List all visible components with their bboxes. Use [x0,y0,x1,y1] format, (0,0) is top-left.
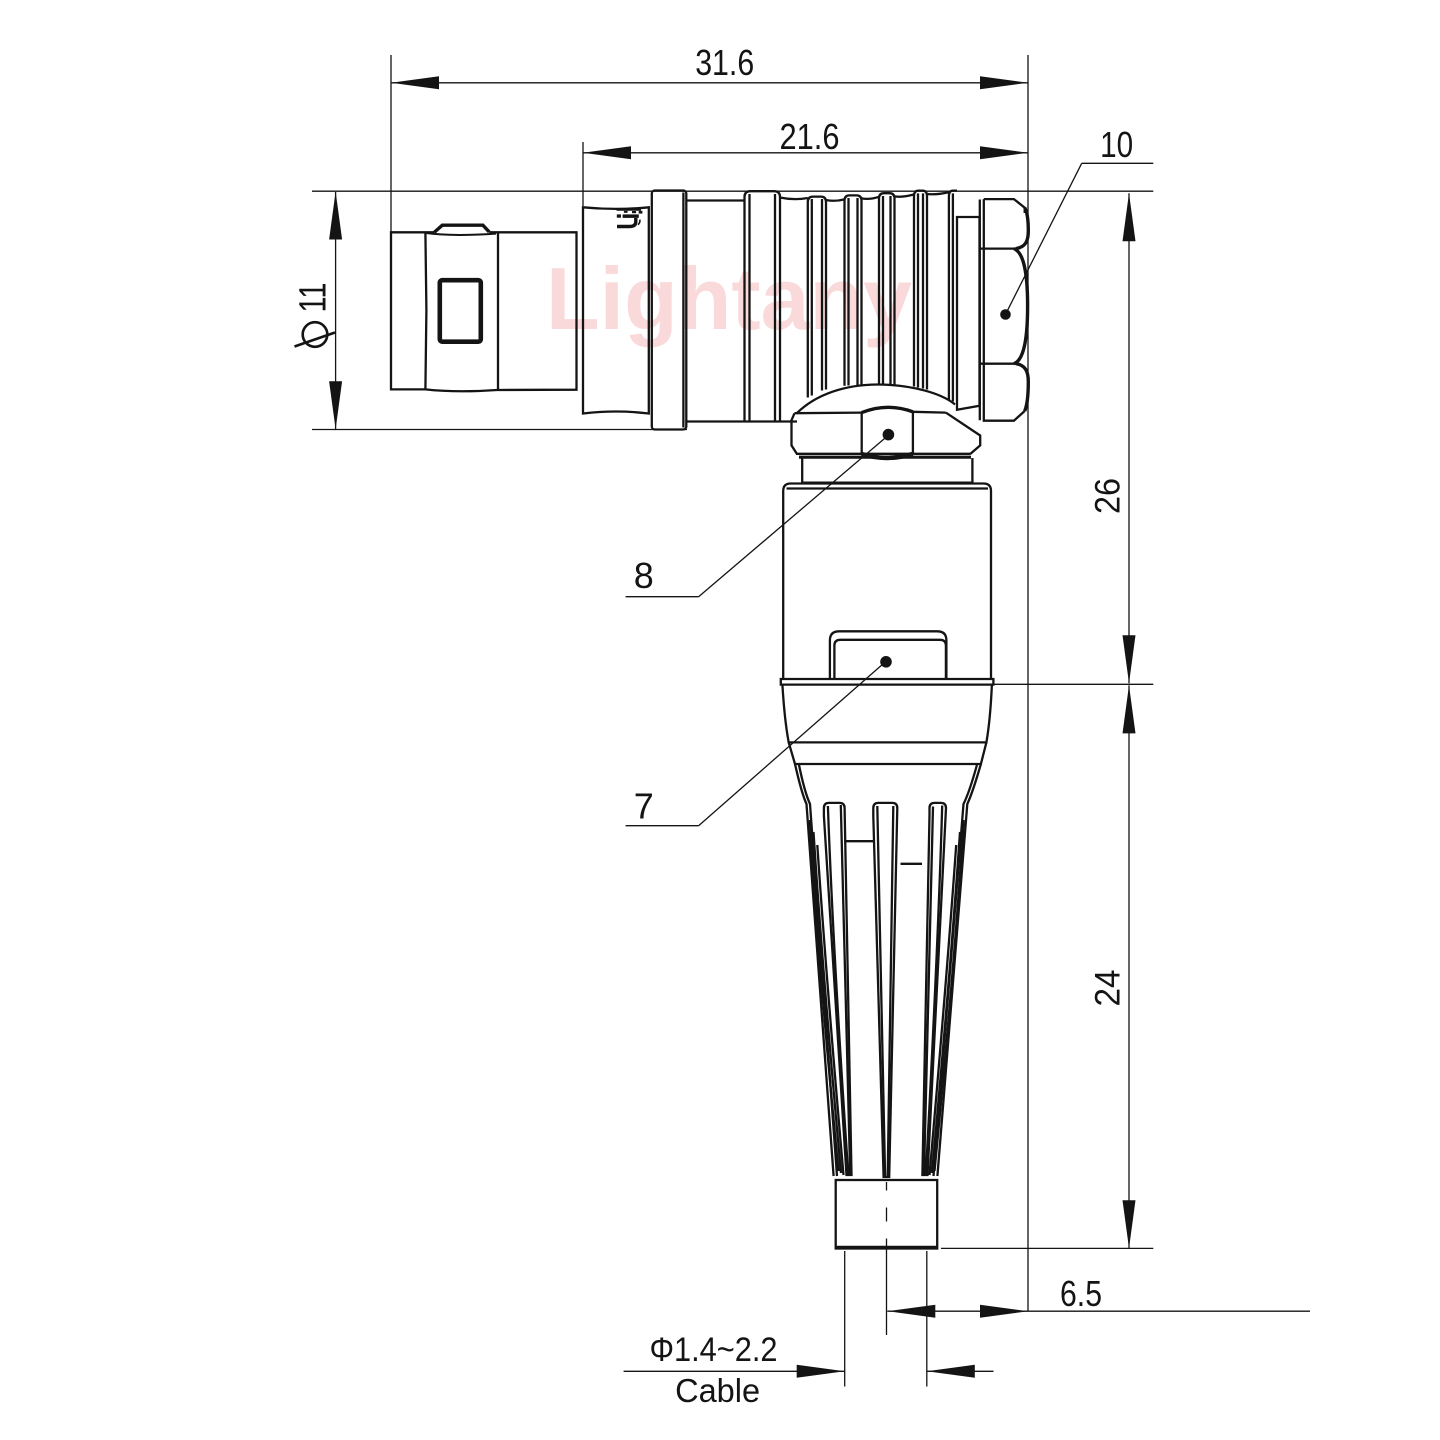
svg-text:26: 26 [1089,478,1128,514]
svg-text:11: 11 [293,283,335,313]
svg-text:6.5: 6.5 [1060,1273,1102,1314]
svg-text:31.6: 31.6 [695,42,754,83]
svg-text:10: 10 [1100,124,1133,165]
svg-text:Cable: Cable [675,1372,760,1409]
svg-text:21.6: 21.6 [780,116,840,157]
svg-text:8: 8 [634,555,654,596]
svg-text:7: 7 [634,786,654,827]
svg-text:Φ1.4~2.2: Φ1.4~2.2 [650,1331,778,1369]
svg-text:24: 24 [1089,970,1128,1007]
